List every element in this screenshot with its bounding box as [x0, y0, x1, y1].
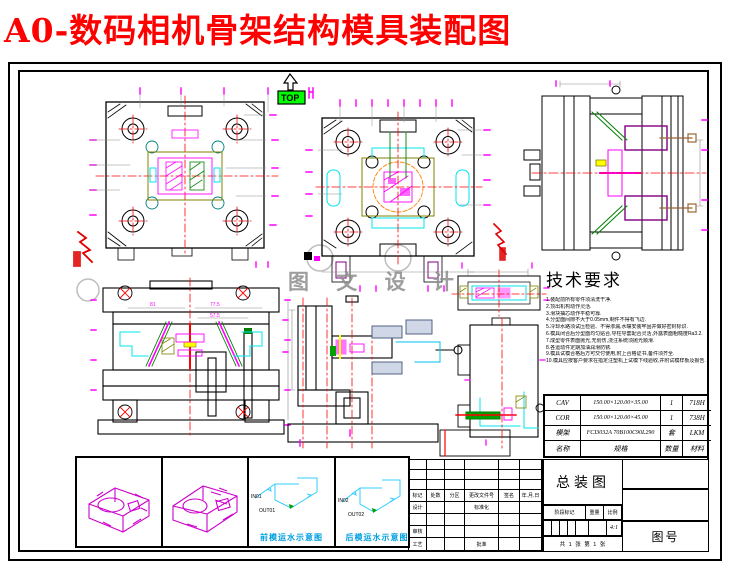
cooling-caption-rear: 后模运水示意图	[336, 532, 418, 543]
stage-tick-row: 4:1	[543, 520, 623, 536]
bottom-strip: IN01 OUT01 前模运水示意图 IN02 OUT02 后模运水示意图	[75, 456, 410, 548]
iso-part-view-2	[163, 458, 249, 546]
titleblock-empty-cell-top	[622, 459, 709, 489]
iso-part-drawing-2	[163, 458, 247, 546]
tech-line: 3.滑块抽芯动作平稳可靠.	[546, 311, 708, 318]
technical-requirements: 技术要求 1.装配前所有零件须清洗干净. 2.顶出机构动作灵活. 3.滑块抽芯动…	[546, 266, 708, 365]
red-stamp-left	[74, 232, 92, 266]
cooling-diagram-front: IN01 OUT01 前模运水示意图	[249, 458, 336, 546]
watermark-text: 图 文 设 计	[288, 266, 458, 296]
tech-line: 9.模具试模合格后方可交付使用,附上合格证书,备件须齐全.	[546, 351, 708, 358]
mold-table-header-cell: 材料	[683, 441, 711, 456]
mold-table-cell: 1	[661, 411, 683, 426]
scale-value: 4:1	[607, 521, 622, 535]
tech-line: 2.顶出机构动作灵活.	[546, 304, 708, 311]
mold-table-header-cell: 数量	[661, 441, 683, 456]
cooling-in-label: IN02	[338, 498, 349, 504]
standardization-label: 标准化	[465, 502, 499, 514]
mold-table-header-cell: 规格	[581, 441, 661, 456]
stage-weight-scale-row: 阶段标记 重量 比例	[543, 505, 623, 520]
mold-table-cell: FCI3032A 70B100C90L290	[581, 426, 661, 441]
titleblock-empty-cell-mid	[622, 489, 709, 521]
mold-table-cell: CAV	[545, 396, 581, 411]
rev-header-sign: 签名	[499, 490, 520, 502]
cooling-in-label: IN01	[251, 494, 262, 500]
drawing-number-cell: 图号	[622, 521, 709, 552]
mold-table-cell: 150.00×120.00×45.00	[581, 411, 661, 426]
mold-table-cell: 718H	[683, 396, 711, 411]
rev-header-date: 年.月.日	[520, 490, 542, 502]
tech-line: 6.模具闭合后分型面均匀贴合,导柱导套配合灵活,外露表面粗糙度Ra3.2.	[546, 331, 708, 338]
view-plan-fixed-half	[90, 88, 278, 267]
tech-line: 4.分型面间隙不大于0.05mm,制件不得有飞边.	[546, 317, 708, 324]
iso-part-drawing-1	[77, 458, 161, 546]
revision-grid: 标记 处数 分区 更改文件号 签名 年.月.日 设计 标准化 审核 工艺 批准	[408, 459, 543, 552]
stage-mark-label: 阶段标记	[544, 506, 586, 519]
tech-requirements-title: 技术要求	[546, 266, 708, 291]
sheet-count-cell: 共 1 张 第 1 张	[543, 536, 623, 552]
tech-line: 7.成型零件表面抛光,无划伤,浇注系统须抛光顺滑.	[546, 338, 708, 345]
iso-part-view-1	[77, 458, 163, 546]
mold-table-cell: 套	[661, 426, 683, 441]
drawing-name-cell: 总装图	[543, 459, 623, 505]
tech-line: 8.各运动件定期加油润滑防锈.	[546, 345, 708, 352]
cooling-caption-front: 前模运水示意图	[249, 532, 334, 543]
dim-81: 81	[150, 302, 156, 308]
cooling-path-rear	[336, 458, 418, 520]
cooling-out-label: OUT02	[348, 512, 364, 518]
rev-header-zone: 分区	[445, 490, 465, 502]
approve-label: 批准	[465, 538, 499, 551]
view-ejector-section	[283, 296, 510, 456]
weight-value	[589, 521, 607, 535]
rev-header-docno: 更改文件号	[465, 490, 499, 502]
mold-table-header-cell: 名称	[545, 441, 581, 456]
mold-table-cell: 150.00×120.00×35.00	[581, 396, 661, 411]
view-side-section	[524, 81, 707, 260]
mold-table-cell: 1	[661, 396, 683, 411]
mold-table-cell: 模架	[545, 426, 581, 441]
tech-line: 10.模具应按客户要求在指定注塑机上试模下线验收,并附试模样板及报告.	[546, 358, 708, 365]
view-detail-small	[452, 263, 549, 316]
tech-line: 1.装配前所有零件须清洗干净.	[546, 297, 708, 304]
view-right-partial-section	[456, 318, 545, 448]
view-front-section: 81 77.5 57.5	[91, 278, 290, 438]
cooling-out-label: OUT01	[259, 508, 275, 514]
scale-label: 比例	[604, 506, 622, 519]
mold-table-cell: COR	[545, 411, 581, 426]
red-stamp-right	[494, 224, 506, 260]
cad-assembly-drawing-page: { "title": "A0-数码相机骨架结构模具装配图", "top_mark…	[0, 0, 732, 574]
mold-base-table: CAV 150.00×120.00×35.00 1 718H COR 150.0…	[543, 394, 709, 458]
mold-table-cell: 738H	[683, 411, 711, 426]
rev-header-count: 处数	[427, 490, 445, 502]
weight-label: 重量	[586, 506, 604, 519]
mold-table-cell: LKM	[683, 426, 711, 441]
dim-77-5: 77.5	[210, 302, 220, 308]
dim-57-5: 57.5	[210, 313, 220, 319]
top-direction-marker: TOP	[278, 74, 313, 104]
top-marker-label: TOP	[281, 93, 299, 103]
tech-line: 5.冷却水路须试压检验、不得渗漏,水嘴安装牢固并做好密封标识.	[546, 324, 708, 331]
cooling-diagram-rear: IN02 OUT02 后模运水示意图	[336, 458, 418, 546]
